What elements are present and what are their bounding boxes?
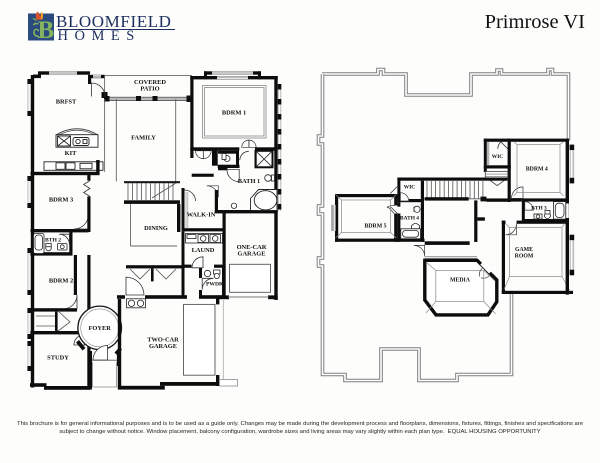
svg-text:BDRM 1: BDRM 1 [222, 110, 246, 117]
svg-text:BDRM 5: BDRM 5 [364, 224, 386, 230]
svg-text:WIC: WIC [492, 154, 503, 160]
svg-text:PATIO: PATIO [140, 86, 159, 93]
svg-text:BDRM 3: BDRM 3 [49, 197, 73, 204]
svg-text:WIC: WIC [404, 185, 415, 191]
svg-text:BTH 2: BTH 2 [45, 238, 61, 244]
svg-text:KIT: KIT [65, 150, 77, 157]
svg-text:PWDR: PWDR [206, 282, 224, 288]
svg-text:STUDY: STUDY [47, 355, 69, 362]
svg-text:BRFST: BRFST [56, 99, 77, 106]
svg-text:BATH 1: BATH 1 [238, 178, 260, 185]
svg-text:WALK-IN: WALK-IN [187, 212, 216, 219]
svg-text:LAUND: LAUND [192, 247, 215, 254]
svg-text:DINING: DINING [144, 225, 168, 232]
svg-text:GARAGE: GARAGE [149, 343, 177, 350]
svg-text:BDRM 2: BDRM 2 [49, 278, 73, 285]
svg-text:MEDIA: MEDIA [450, 278, 471, 284]
svg-text:BDRM 4: BDRM 4 [526, 167, 548, 173]
svg-text:FAMILY: FAMILY [131, 135, 156, 142]
svg-text:FOYER: FOYER [89, 325, 112, 332]
svg-text:BATH 4: BATH 4 [400, 216, 419, 222]
svg-text:ROOM: ROOM [515, 254, 534, 260]
svg-text:GAME: GAME [515, 247, 533, 253]
svg-text:BTH 3: BTH 3 [531, 206, 547, 212]
svg-text:GARAGE: GARAGE [237, 251, 265, 258]
